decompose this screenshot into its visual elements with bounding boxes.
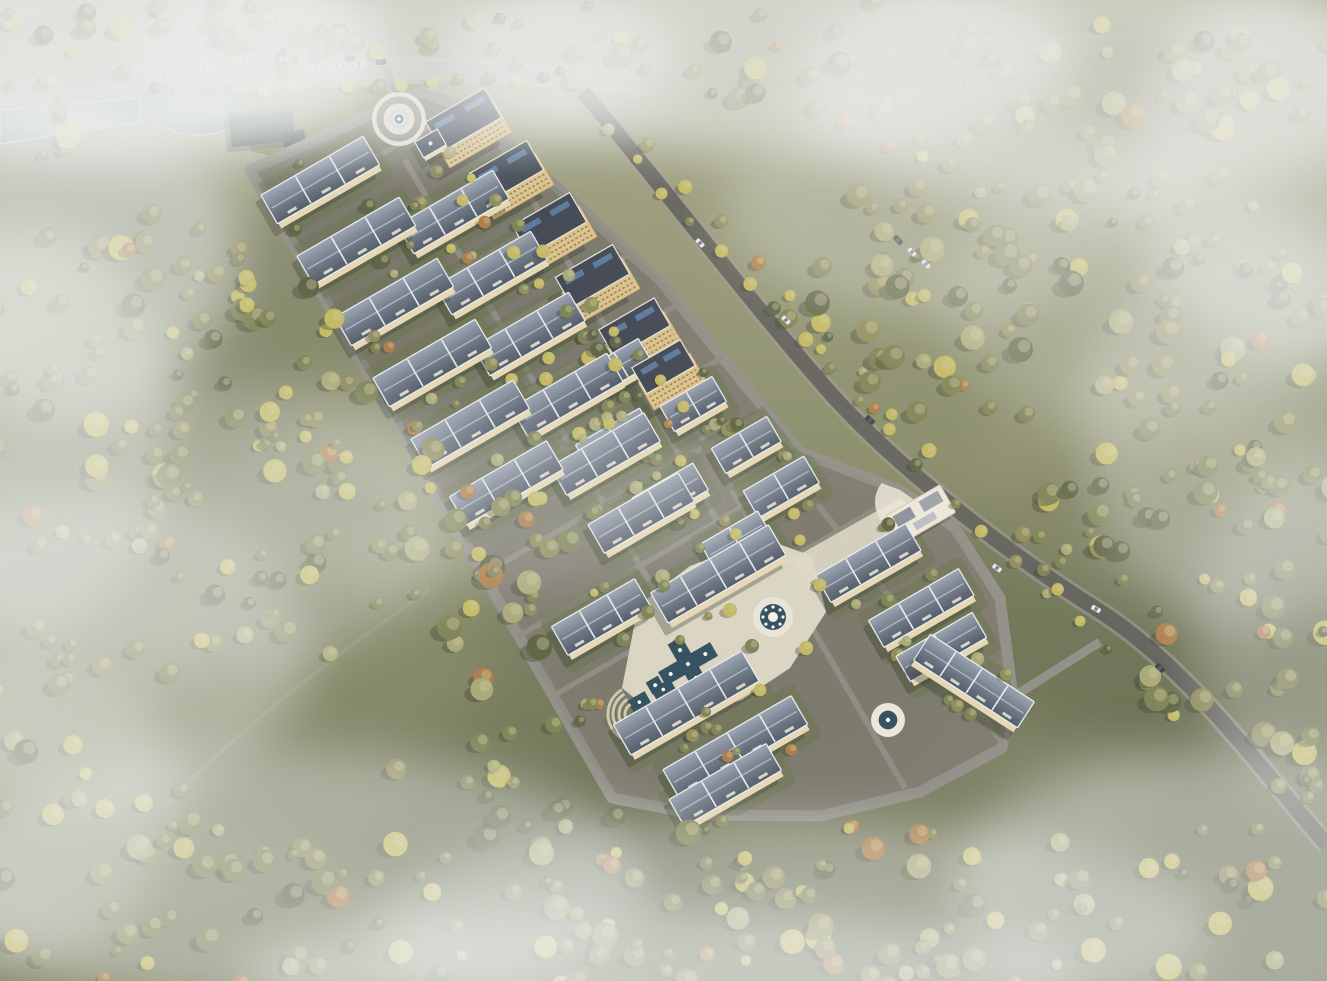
site-plan-svg	[0, 0, 1327, 981]
mist-overlay	[0, 0, 1327, 981]
mist-patch	[720, 100, 1160, 320]
mist-patch	[170, 420, 770, 590]
aerial-rendering	[0, 0, 1327, 981]
